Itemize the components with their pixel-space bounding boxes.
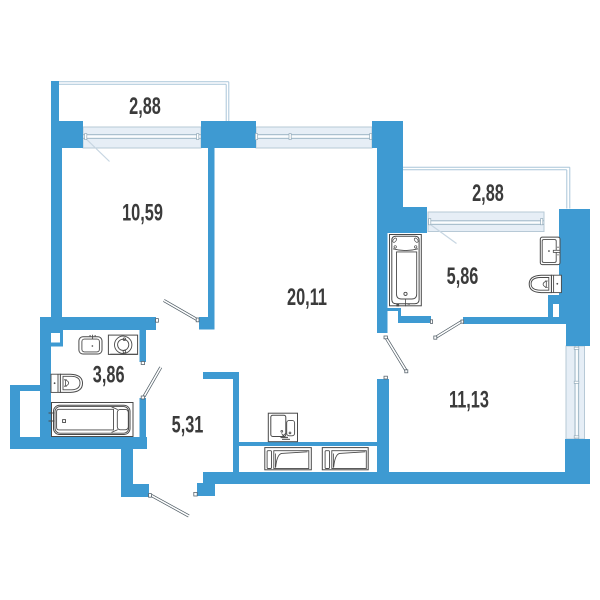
svg-text:5,31: 5,31 bbox=[172, 412, 204, 439]
svg-text:20,11: 20,11 bbox=[287, 284, 327, 311]
svg-text:10,59: 10,59 bbox=[122, 200, 163, 227]
svg-text:5,86: 5,86 bbox=[447, 263, 479, 290]
svg-text:2,88: 2,88 bbox=[129, 93, 161, 120]
svg-text:11,13: 11,13 bbox=[449, 387, 489, 414]
svg-text:2,88: 2,88 bbox=[472, 180, 504, 207]
svg-text:3,86: 3,86 bbox=[93, 362, 125, 389]
